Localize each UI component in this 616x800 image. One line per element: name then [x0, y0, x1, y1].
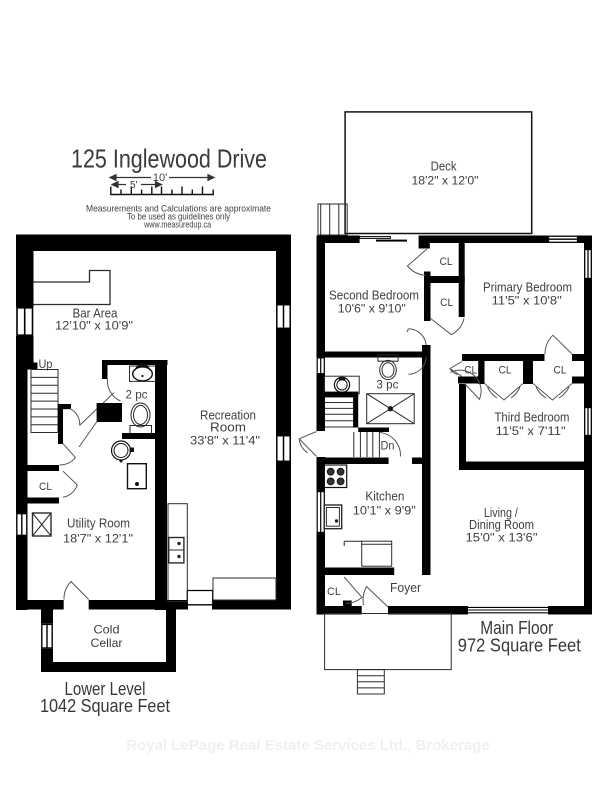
- svg-text:CL: CL: [327, 586, 341, 598]
- svg-text:18'2" x 12'0": 18'2" x 12'0": [412, 174, 479, 188]
- svg-text:972 Square Feet: 972 Square Feet: [458, 636, 581, 656]
- svg-text:Up: Up: [39, 357, 53, 371]
- svg-text:Third Bedroom: Third Bedroom: [495, 410, 570, 425]
- svg-text:10'6" x 9'10": 10'6" x 9'10": [338, 302, 406, 316]
- svg-text:Utility Room: Utility Room: [67, 516, 130, 531]
- svg-text:CL: CL: [554, 365, 567, 377]
- svg-text:Second Bedroom: Second Bedroom: [329, 288, 419, 303]
- svg-text:Primary Bedroom: Primary Bedroom: [483, 280, 572, 295]
- svg-text:Dn: Dn: [381, 439, 395, 453]
- svg-text:18'7" x 12'1": 18'7" x 12'1": [63, 532, 133, 546]
- svg-text:12'10" x 10'9": 12'10" x 10'9": [55, 319, 133, 333]
- svg-text:33'8" x 11'4": 33'8" x 11'4": [190, 434, 260, 448]
- svg-text:Deck: Deck: [431, 159, 457, 174]
- svg-text:125 Inglewood Drive: 125 Inglewood Drive: [71, 144, 267, 174]
- svg-text:1042 Square Feet: 1042 Square Feet: [40, 696, 170, 716]
- svg-text:11'5" x 10'8": 11'5" x 10'8": [492, 294, 562, 308]
- svg-text:11'5" x 7'11": 11'5" x 7'11": [496, 424, 566, 438]
- svg-text:Cellar: Cellar: [91, 636, 123, 650]
- svg-text:CL: CL: [39, 481, 52, 493]
- svg-text:CL: CL: [440, 297, 453, 309]
- svg-text:Kitchen: Kitchen: [365, 489, 404, 504]
- svg-text:10'1" x 9'9": 10'1" x 9'9": [353, 504, 416, 518]
- svg-text:10': 10': [153, 172, 167, 184]
- svg-text:3 pc: 3 pc: [376, 378, 398, 392]
- svg-text:2 pc: 2 pc: [126, 388, 148, 402]
- svg-text:15'0" x 13'6": 15'0" x 13'6": [466, 531, 538, 545]
- svg-text:5': 5': [130, 180, 138, 191]
- svg-text:CL: CL: [440, 256, 453, 268]
- svg-text:CL: CL: [499, 365, 512, 377]
- svg-text:Foyer: Foyer: [390, 580, 422, 595]
- svg-text:Room: Room: [210, 420, 246, 435]
- svg-text:Cold: Cold: [94, 623, 120, 637]
- svg-text:Royal LePage Real Estate Servi: Royal LePage Real Estate Services Ltd., …: [126, 737, 490, 754]
- svg-text:www.measuredup.ca: www.measuredup.ca: [143, 220, 211, 230]
